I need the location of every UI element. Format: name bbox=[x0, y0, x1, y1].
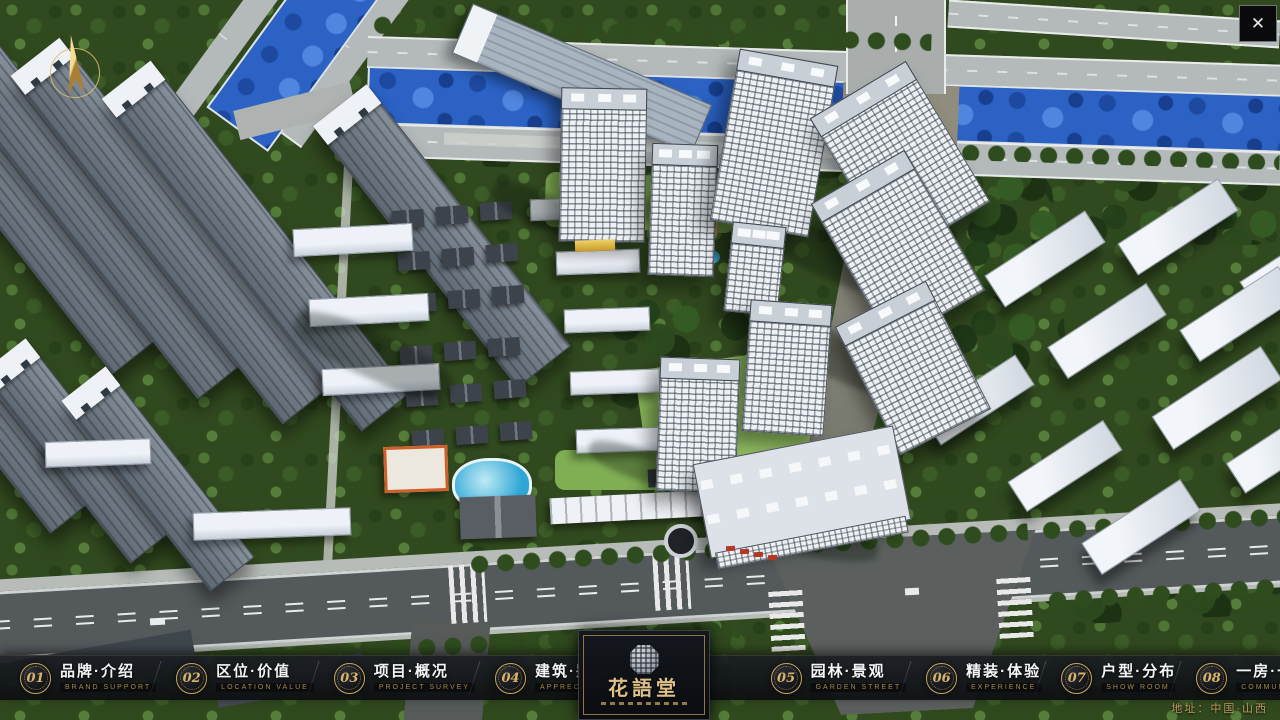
menu-text: 一房·一景 COMMUNITY bbox=[1236, 664, 1280, 692]
menu-text: 项目·概况 PROJECT SURVEY bbox=[374, 664, 475, 692]
car bbox=[726, 546, 735, 551]
car bbox=[754, 552, 763, 557]
courtyard-house bbox=[455, 425, 488, 445]
compass-north-control[interactable] bbox=[42, 30, 106, 104]
menu-item-project-survey[interactable]: 03 项目·概况 PROJECT SURVEY bbox=[314, 656, 475, 700]
car bbox=[740, 549, 749, 554]
courtyard-house bbox=[493, 379, 526, 399]
menu-text: 精装·体验 EXPERIENCE bbox=[966, 664, 1041, 692]
menu-number-badge: 04 bbox=[495, 663, 526, 694]
tower-roof bbox=[731, 221, 787, 249]
low-rise-building bbox=[193, 507, 352, 540]
menu-label: 户型·分布 bbox=[1101, 664, 1176, 681]
entrance-plaza-fountain bbox=[664, 524, 698, 558]
car bbox=[768, 555, 777, 560]
menu-label: 一房·一景 bbox=[1236, 664, 1280, 681]
residential-slab bbox=[1152, 346, 1280, 450]
tower bbox=[559, 87, 648, 242]
menu-caption: GARDEN STREET bbox=[811, 683, 907, 692]
menu-number: 08 bbox=[1203, 671, 1221, 686]
residential-slab bbox=[1007, 420, 1122, 512]
menu-number: 06 bbox=[933, 671, 951, 686]
menu-caption: PROJECT SURVEY bbox=[374, 683, 475, 692]
menu-caption: COMMUNITY bbox=[1236, 683, 1280, 692]
menu-number-badge: 05 bbox=[771, 663, 802, 694]
close-icon: ✕ bbox=[1251, 15, 1265, 32]
low-rise-building bbox=[556, 249, 641, 276]
menu-number: 01 bbox=[26, 671, 44, 686]
low-rise-building bbox=[570, 368, 661, 395]
close-button[interactable]: ✕ bbox=[1239, 5, 1277, 42]
menu-label: 品牌·介绍 bbox=[60, 664, 135, 681]
residential-slab bbox=[1047, 283, 1167, 379]
crosswalk bbox=[768, 586, 806, 652]
city-building-roof bbox=[102, 61, 166, 118]
menu-number: 04 bbox=[501, 671, 519, 686]
car bbox=[150, 618, 165, 626]
retail-canopy bbox=[549, 490, 718, 525]
low-rise-building bbox=[292, 223, 413, 257]
courtyard-house bbox=[485, 243, 518, 263]
menu-text: 园林·景观 GARDEN STREET bbox=[811, 664, 907, 692]
menu-text: 区位·价值 LOCATION VALUE bbox=[216, 664, 314, 692]
low-rise-building bbox=[45, 438, 152, 468]
brand-tagline-decoration bbox=[601, 702, 687, 705]
low-rise-building bbox=[564, 307, 651, 334]
menu-number-badge: 03 bbox=[334, 663, 365, 694]
menu-label: 精装·体验 bbox=[966, 664, 1041, 681]
menu-item-unit-distribution[interactable]: 07 户型·分布 SHOW ROOM bbox=[1041, 656, 1176, 700]
menu-caption: LOCATION VALUE bbox=[216, 683, 314, 692]
brand-logo-frame: 花語堂 bbox=[583, 635, 705, 715]
sales-office bbox=[383, 445, 449, 493]
menu-number-badge: 06 bbox=[926, 663, 957, 694]
tower-roof bbox=[652, 143, 719, 167]
menu-item-interior-experience[interactable]: 06 精装·体验 EXPERIENCE bbox=[906, 656, 1041, 700]
menu-caption: SHOW ROOM bbox=[1101, 683, 1175, 692]
brand-name: 花語堂 bbox=[608, 678, 680, 698]
aerial-map-viewport[interactable] bbox=[0, 0, 1280, 720]
residential-slab bbox=[1226, 412, 1280, 493]
city-building-roof bbox=[0, 338, 40, 391]
menu-text: 品牌·介绍 BRAND SUPPORT bbox=[60, 664, 156, 692]
tower-roof bbox=[749, 299, 832, 327]
menu-number: 03 bbox=[340, 671, 358, 686]
sales-presentation-window: ✕ 01 品牌·介绍 BRAND SUPPORT 02 区位·价值 LOCATI… bbox=[0, 0, 1280, 720]
car bbox=[905, 588, 919, 596]
menu-number-badge: 08 bbox=[1196, 663, 1227, 694]
menu-label: 项目·概况 bbox=[374, 664, 449, 681]
tower bbox=[741, 299, 832, 436]
courtyard-house bbox=[447, 289, 480, 309]
menu-item-garden-landscape[interactable]: 05 园林·景观 GARDEN STREET bbox=[751, 656, 907, 700]
courtyard-house bbox=[397, 251, 430, 271]
courtyard-house bbox=[449, 383, 482, 403]
menu-label: 区位·价值 bbox=[216, 664, 291, 681]
courtyard-house bbox=[499, 421, 532, 441]
tower-roof bbox=[561, 87, 647, 110]
northeast-road bbox=[947, 0, 1280, 48]
residential-slab bbox=[1179, 266, 1280, 362]
city-building-roof bbox=[61, 366, 120, 419]
brand-seal-icon bbox=[630, 645, 659, 674]
project-address-label: 地址：中国·山西 bbox=[1171, 700, 1268, 716]
menu-item-brand-intro[interactable]: 01 品牌·介绍 BRAND SUPPORT bbox=[0, 656, 156, 700]
menu-item-room-view[interactable]: 08 一房·一景 COMMUNITY bbox=[1176, 656, 1280, 700]
menu-text: 户型·分布 SHOW ROOM bbox=[1101, 664, 1176, 692]
courtyard-house bbox=[487, 337, 520, 357]
menu-number: 07 bbox=[1068, 671, 1086, 686]
menu-number: 05 bbox=[777, 671, 795, 686]
menu-number-badge: 02 bbox=[176, 663, 207, 694]
menu-caption: BRAND SUPPORT bbox=[60, 683, 156, 692]
tower-roof bbox=[660, 357, 741, 382]
menu-number: 02 bbox=[183, 671, 201, 686]
crosswalk bbox=[996, 573, 1034, 639]
menu-number-badge: 01 bbox=[20, 663, 51, 694]
courtyard-house bbox=[441, 247, 474, 267]
courtyard-house bbox=[443, 341, 476, 361]
brand-logo-plate[interactable]: 花語堂 bbox=[578, 630, 710, 720]
bus bbox=[575, 239, 615, 251]
menu-label: 园林·景观 bbox=[811, 664, 886, 681]
menu-number-badge: 07 bbox=[1061, 663, 1092, 694]
courtyard-house bbox=[435, 205, 468, 225]
courtyard-house bbox=[491, 285, 524, 305]
menu-caption: EXPERIENCE bbox=[966, 683, 1041, 692]
menu-item-location-value[interactable]: 02 区位·价值 LOCATION VALUE bbox=[156, 656, 314, 700]
pavilion bbox=[459, 495, 536, 540]
tower bbox=[648, 143, 719, 277]
